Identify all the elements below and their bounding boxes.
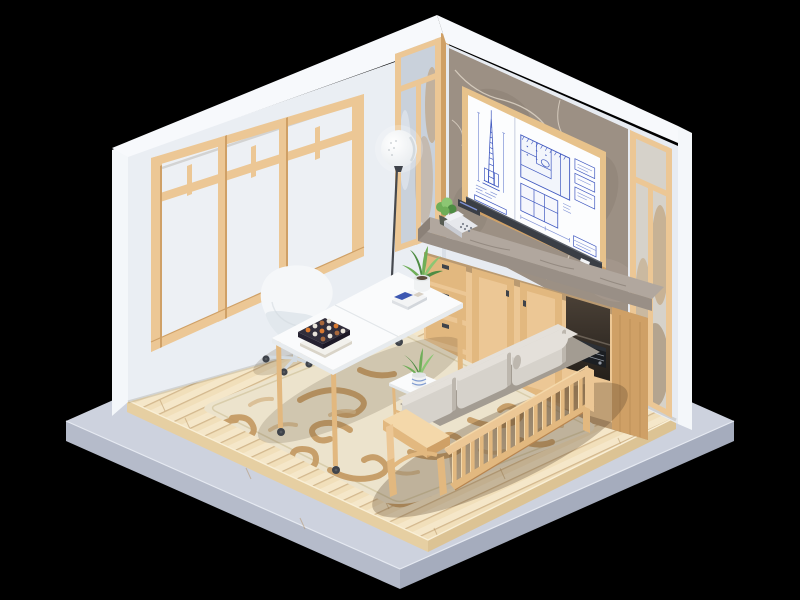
transom-post-3	[315, 126, 320, 160]
stile-shade-1	[160, 165, 162, 348]
isometric-room-render	[0, 0, 800, 600]
left-wall-end-face	[112, 143, 128, 416]
frost-right-stile-b	[666, 146, 672, 418]
stile-shade-2	[225, 135, 227, 319]
stereo-knob	[598, 361, 601, 364]
sofa-right-post	[585, 366, 594, 412]
sofa-right-leg	[583, 406, 590, 433]
door-handle-a	[506, 290, 509, 297]
screenshot-canvas	[0, 0, 800, 600]
transom-post-2	[251, 145, 256, 178]
lamp-globe	[381, 130, 417, 168]
door-handle-b	[523, 300, 526, 307]
window-stile-right	[352, 94, 364, 261]
right-wall-end-face	[678, 126, 692, 430]
stile-shade-3	[286, 117, 288, 291]
transom-post-1	[187, 164, 192, 196]
